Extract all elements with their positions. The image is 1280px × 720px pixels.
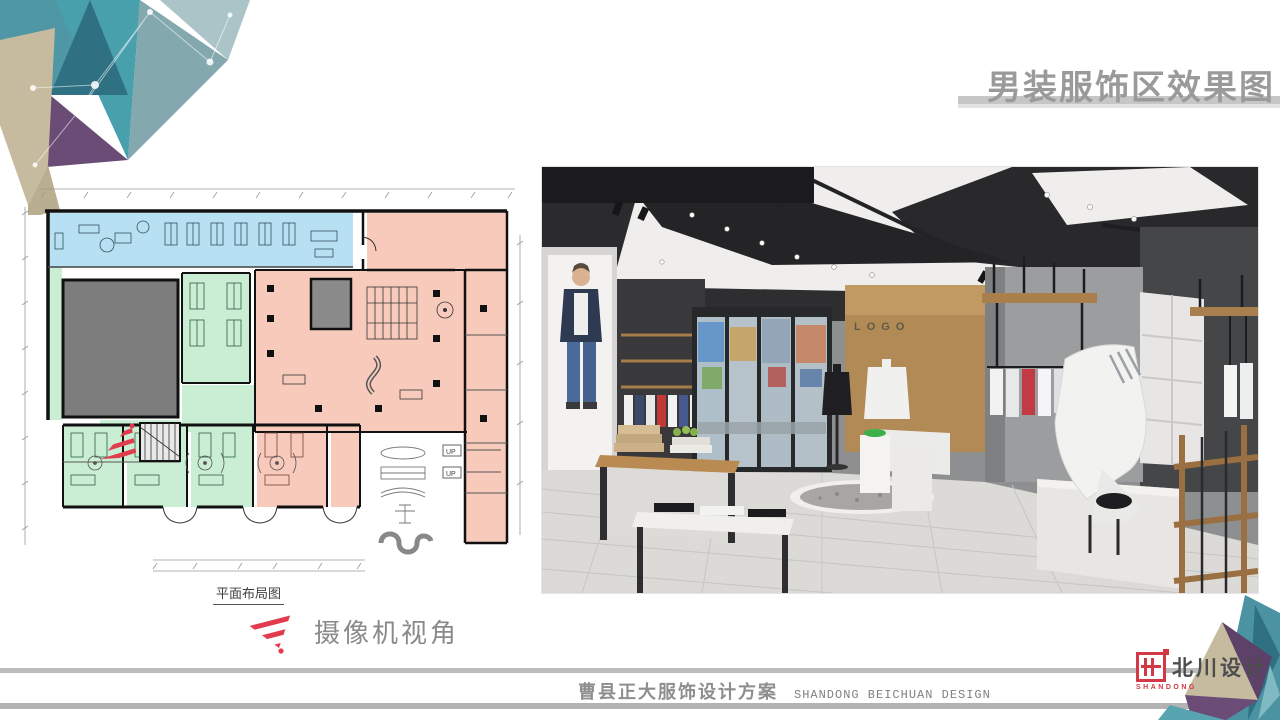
pedestal [892, 449, 932, 511]
floor-plan-drawing: UP UP [15, 175, 530, 620]
footer: 曹县正大服饰设计方案 SHANDONG BEICHUAN DESIGN [578, 678, 991, 704]
floor-plan-panel: UP UP 平面布局图 [15, 175, 530, 620]
plan-zones [48, 213, 507, 542]
logo-wall: LOGO [845, 285, 985, 452]
white-mannequin [864, 359, 910, 419]
poster-wall [542, 247, 617, 472]
store-logo-text: LOGO [854, 321, 910, 333]
camera-view-label: 摄像机视角 [314, 613, 459, 650]
footer-project-name: 曹县正大服饰设计方案 [578, 678, 778, 704]
menswear-area-rendering: LOGO [542, 167, 1258, 593]
hanging-clothes-left [624, 395, 699, 427]
pedestal [860, 435, 890, 493]
brand-mark-icon [1136, 652, 1166, 682]
floor-plan-label: 平面布局图 [213, 583, 284, 605]
brand-subtitle: SHANDONG [1136, 684, 1268, 691]
legend-up-label: UP [446, 449, 456, 456]
legend-up-label-2: UP [446, 471, 456, 478]
presentation-slide: 男装服饰区效果图 [0, 0, 1280, 720]
plan-staircase [140, 423, 180, 461]
footer-divider-top [0, 668, 1280, 673]
brand-name: 北川设计 [1172, 652, 1268, 682]
green-bowl [864, 429, 886, 437]
storefront-glass [692, 307, 832, 472]
footer-company-name: SHANDONG BEICHUAN DESIGN [794, 688, 991, 702]
camera-view-icon [240, 608, 296, 654]
plan-core-area [63, 280, 178, 417]
brand-logo-block: 北川设计 SHANDONG [1136, 652, 1268, 691]
white-shelf-unit [1140, 292, 1204, 467]
camera-view-legend: 摄像机视角 [240, 608, 459, 654]
page-title: 男装服饰区效果图 [987, 60, 1275, 109]
